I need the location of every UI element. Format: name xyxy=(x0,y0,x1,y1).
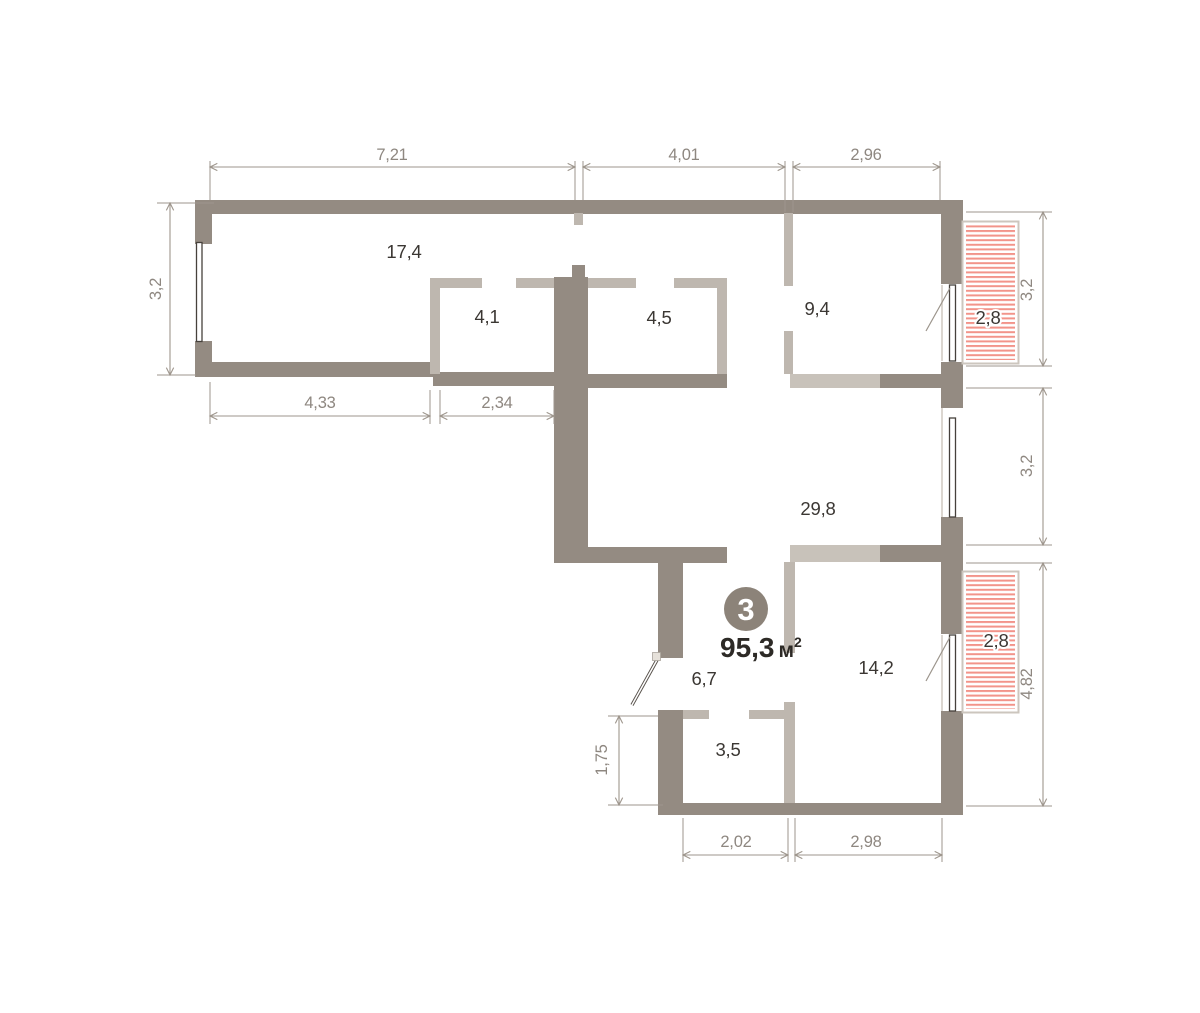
partition-9-4-left-upper xyxy=(784,213,793,286)
room-label-2-8-bottom: 2,8 xyxy=(983,630,1008,651)
dim-label-bottom-left-2: 2,34 xyxy=(481,394,512,412)
dim-ext-lines-inner-left xyxy=(608,716,663,805)
entry-door-leaf-core xyxy=(632,660,657,705)
partition-4-1-top-left xyxy=(430,278,482,288)
room-label-4-1: 4,1 xyxy=(474,306,499,327)
dim-label-right-2: 3,2 xyxy=(1018,455,1036,477)
balcony-door-top xyxy=(950,285,956,361)
wall-strip-bottom-left xyxy=(195,362,433,377)
wall-entry-lower xyxy=(658,710,683,815)
dim-label-right-3: 4,82 xyxy=(1018,668,1036,699)
wall-top xyxy=(195,200,963,214)
entry-door-hinge xyxy=(653,653,661,661)
wall-entry-upper xyxy=(658,563,683,658)
dimensions: 7,21 4,01 2,96 3,2 4,33 2,34 3,2 3,2 4,8… xyxy=(147,146,1052,862)
wall-right-14-2-lower xyxy=(941,711,963,815)
dim-label-bottom-left-1: 4,33 xyxy=(304,394,335,412)
dim-label-right-1: 3,2 xyxy=(1018,279,1036,301)
room-label-14-2: 14,2 xyxy=(858,657,893,678)
room-label-6-7: 6,7 xyxy=(691,668,716,689)
room-label-3-5: 3,5 xyxy=(715,739,740,760)
door-swing-14-2 xyxy=(926,637,950,681)
dim-inner-left-chain: 1,75 xyxy=(593,716,663,805)
wall-bottom-of-9-4-light xyxy=(790,374,880,388)
wall-right-block-mid2 xyxy=(941,517,963,563)
partition-4-1-left xyxy=(430,278,440,374)
dim-label-left: 3,2 xyxy=(147,278,165,300)
total-area-value: 95,3 xyxy=(720,632,775,663)
floor-plan-page: 7,21 4,01 2,96 3,2 4,33 2,34 3,2 3,2 4,8… xyxy=(0,0,1200,1013)
wall-stub-light xyxy=(574,213,583,225)
partition-4-1-top-right xyxy=(516,278,554,288)
room-labels: 17,4 4,1 4,5 9,4 2,8 29,8 6,7 14,2 3,5 2… xyxy=(386,241,1008,760)
wall-bottom-of-9-4-dark xyxy=(880,374,941,388)
partition-4-5-top-right xyxy=(674,278,727,288)
balcony-door-bottom xyxy=(950,635,956,711)
dim-label-top-2: 4,01 xyxy=(668,146,699,164)
room-label-29-8: 29,8 xyxy=(800,498,835,519)
balcony-top-hatch xyxy=(966,225,1015,360)
dim-bottom-chain: 2,02 2,98 xyxy=(683,818,942,862)
window-right-29-8 xyxy=(950,418,956,517)
walls xyxy=(195,200,963,815)
wall-top-of-14-2-light xyxy=(790,545,880,562)
wall-top-of-14-2-dark xyxy=(880,545,941,562)
wall-left-block-top xyxy=(195,200,212,244)
floor-plan-svg: 7,21 4,01 2,96 3,2 4,33 2,34 3,2 3,2 4,8… xyxy=(0,0,1200,1013)
wall-right-block-mid1 xyxy=(941,362,963,408)
wall-bottom-of-4-5 xyxy=(588,374,727,388)
room-label-17-4: 17,4 xyxy=(386,241,421,262)
partition-4-5-top-left xyxy=(588,278,636,288)
total-area-unit: м xyxy=(779,639,795,662)
partition-4-5-right xyxy=(717,288,727,374)
dim-label-bottom-1: 2,02 xyxy=(720,833,751,851)
dim-label-bottom-2: 2,98 xyxy=(850,833,881,851)
wall-stub-dark xyxy=(572,265,585,278)
partition-3-5-top-right xyxy=(749,710,790,719)
wall-corridor-top xyxy=(554,547,727,563)
dim-label-top-3: 2,96 xyxy=(850,146,881,164)
wall-right-corner-top xyxy=(941,200,963,284)
dim-bottom-left-chain: 4,33 2,34 xyxy=(210,382,554,424)
wall-right-14-2-upper xyxy=(941,563,963,634)
door-swing-9-4 xyxy=(926,288,950,331)
total-area-sup: 2 xyxy=(794,634,802,650)
dim-label-inner-left: 1,75 xyxy=(593,744,611,775)
room-label-2-8-top: 2,8 xyxy=(975,307,1000,328)
room-label-4-5: 4,5 xyxy=(646,307,671,328)
wall-bottom xyxy=(658,803,963,815)
apartment-number: 3 xyxy=(737,592,754,627)
window-left xyxy=(197,243,203,342)
dim-label-top-1: 7,21 xyxy=(376,146,407,164)
wall-shaft xyxy=(554,277,588,563)
apartment-badge: 3 xyxy=(724,587,768,631)
room-label-9-4: 9,4 xyxy=(804,298,829,319)
partition-9-4-left-lower xyxy=(784,331,793,374)
balcony-top xyxy=(963,222,1019,364)
partition-3-5-top-left xyxy=(683,710,709,719)
